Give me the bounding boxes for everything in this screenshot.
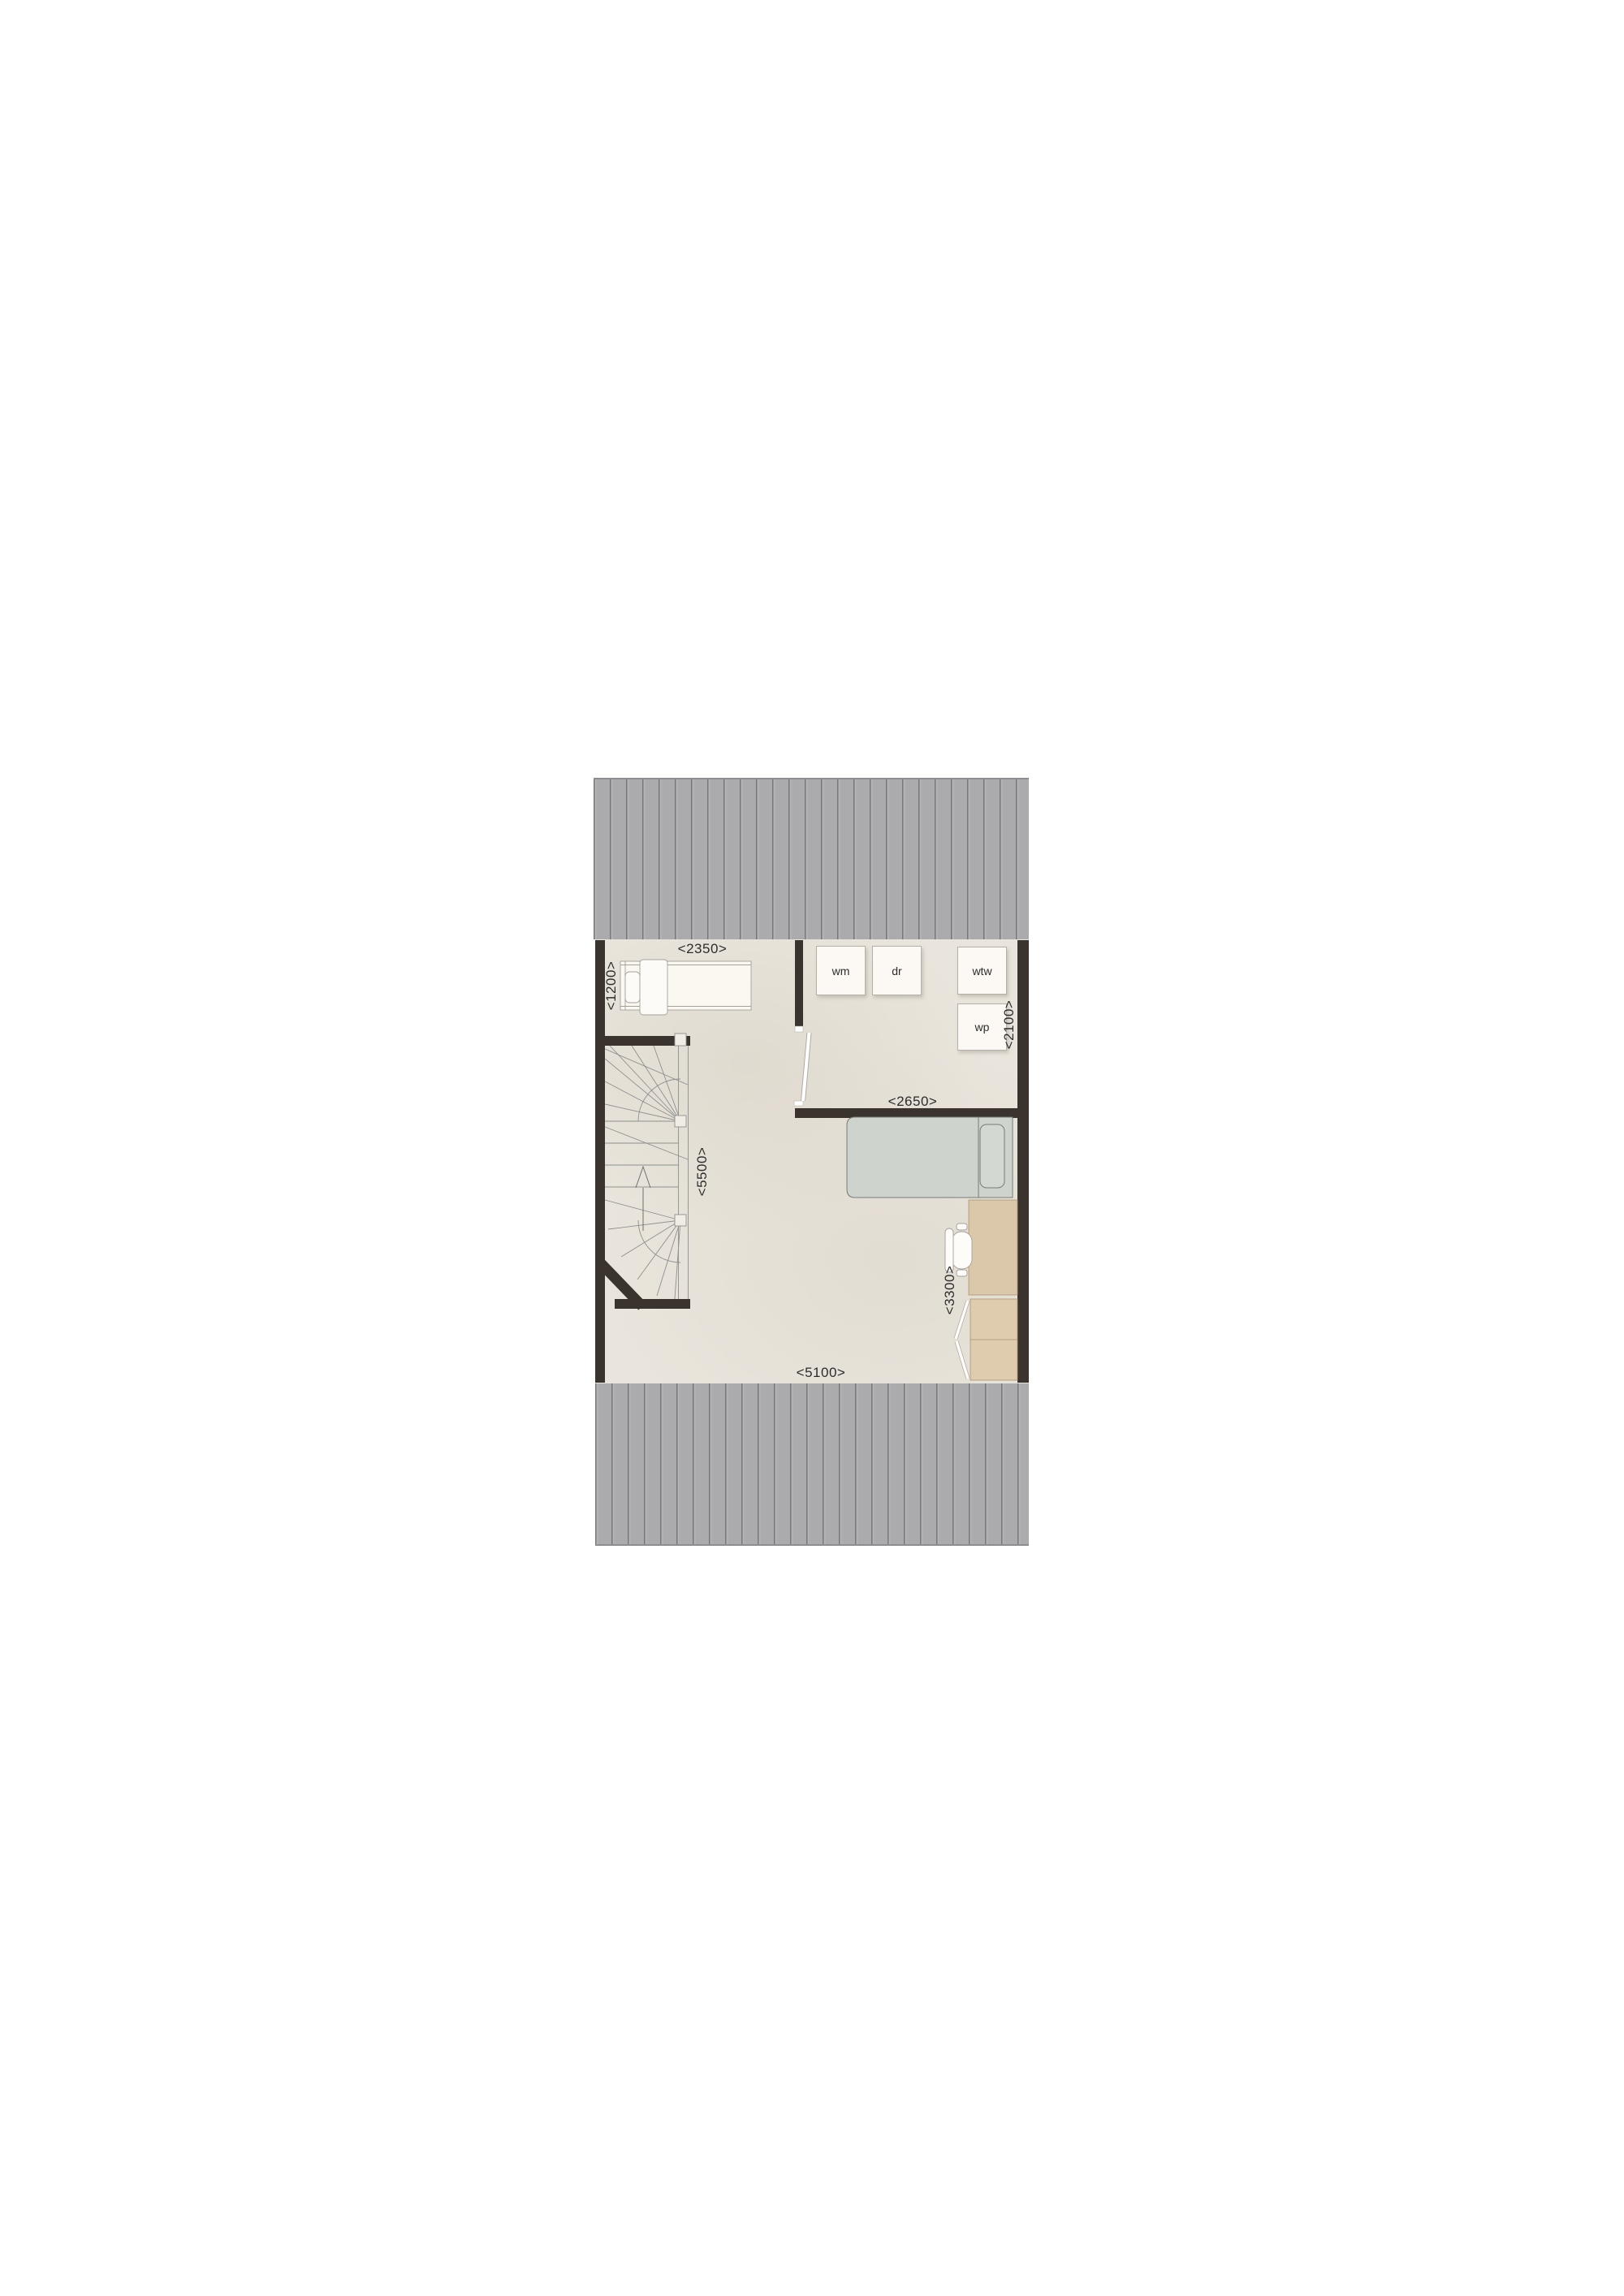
dimension-label-top-room-depth: <1200> <box>604 945 619 1026</box>
appliance-heat-pump: wp <box>957 1003 1007 1051</box>
bed-single-left <box>620 960 751 1015</box>
appliance-dryer: dr <box>872 946 922 995</box>
door <box>794 1026 810 1106</box>
dimension-label-bedroom-wall-width: <2650> <box>872 1094 953 1109</box>
dimension-label-bottom-width: <5100> <box>780 1366 862 1380</box>
bed-single-right <box>847 1117 1013 1198</box>
dimension-label-top-room-width: <2350> <box>662 942 743 956</box>
appliance-heat-recovery-label: wtw <box>972 965 991 978</box>
door-jamb-top <box>795 1026 803 1032</box>
dimension-label-desk-wall-depth: <3300> <box>943 1249 957 1331</box>
staircase <box>605 1034 689 1299</box>
appliance-washing-machine-label: wm <box>832 965 850 978</box>
door-jamb-bottom <box>794 1101 803 1106</box>
stair-direction-arrow <box>636 1167 650 1188</box>
appliance-heat-recovery-unit: wtw <box>957 947 1007 995</box>
floor-plan: wm dr wtw wp <2350> <1200> <2100> <2650>… <box>594 778 1029 1547</box>
appliance-heat-pump-label: wp <box>975 1021 990 1034</box>
appliance-washing-machine: wm <box>816 946 866 995</box>
dimension-label-left-side-depth: <5500> <box>695 1131 710 1212</box>
desk <box>969 1200 1017 1295</box>
furniture-layer <box>594 778 1029 1547</box>
wardrobe <box>956 1299 1017 1380</box>
appliance-dryer-label: dr <box>892 965 901 978</box>
wall-stairwell-diagonal <box>600 1262 642 1306</box>
dimension-label-utility-depth: <2100> <box>1002 984 1017 1065</box>
